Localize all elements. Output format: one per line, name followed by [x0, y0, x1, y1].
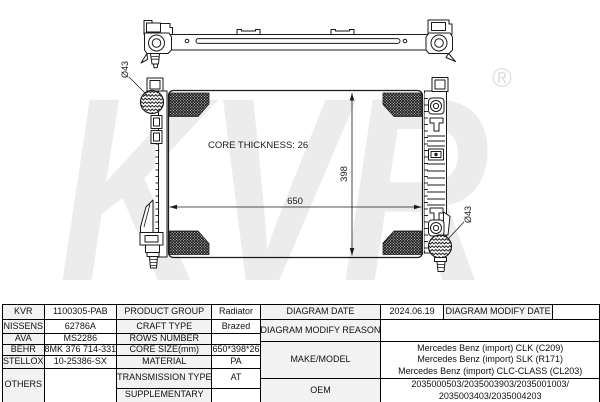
modify-reason-value [381, 320, 600, 342]
radiator-technical-drawing: KVR ® [0, 0, 600, 302]
crossbar-hole [403, 39, 407, 43]
oem-line: 2035003403/2035004203 [381, 391, 599, 402]
property-label: PRODUCT GROUP [117, 305, 212, 320]
brand-cell: KVR [3, 305, 45, 320]
brand-cell: BEHR [3, 344, 45, 355]
brand-cell: OTHERS [3, 368, 45, 402]
property-label: SUPPLEMENTARY [117, 388, 212, 402]
property-value: 650*398*26 [212, 344, 260, 355]
make-model-value: Mercedes Benz (import) CLK (C209) Merced… [381, 342, 600, 379]
part-code-cell: 1100305-PAB [44, 305, 117, 320]
modify-date-value [553, 305, 600, 320]
table-row: BEHR 8MK 376 714-331 CORE SIZE(mm) 650*3… [3, 344, 261, 355]
registered-trademark-icon: ® [492, 63, 512, 93]
spec-table: KVR 1100305-PAB PRODUCT GROUP Radiator N… [2, 304, 600, 402]
parts-cross-reference-table: KVR 1100305-PAB PRODUCT GROUP Radiator N… [2, 304, 261, 402]
property-label: CORE SIZE(mm) [117, 344, 212, 355]
diagram-date-value: 2024.06.19 [381, 305, 443, 320]
part-code-cell: MS2286 [44, 334, 117, 345]
table-row: STELLOX 10-25386-SX MATERIAL PA [3, 355, 261, 368]
left-stud-flange [147, 253, 159, 257]
modify-reason-label: DIAGRAM MODIFY REASON [260, 320, 381, 342]
oem-line: 2035000503/2035003903/2035001003/ [381, 379, 599, 391]
vehicle-info-table: DIAGRAM DATE 2024.06.19 DIAGRAM MODIFY D… [260, 304, 600, 402]
make-model-label: MAKE/MODEL [260, 342, 381, 379]
table-row: OEM 2035000503/2035003903/2035001003/ 20… [260, 379, 599, 402]
table-row: KVR 1100305-PAB PRODUCT GROUP Radiator [3, 305, 261, 320]
property-value [212, 388, 260, 402]
property-label: ROWS NUMBER [117, 334, 212, 345]
property-value: AT [212, 368, 260, 388]
table-row: NISSENS 62786A CRAFT TYPE Brazed [3, 320, 261, 334]
right-port-diameter-label: Ø43 [463, 206, 473, 223]
left-inlet-port [141, 91, 164, 114]
right-tank-serration [425, 93, 429, 251]
table-row: DIAGRAM DATE 2024.06.19 DIAGRAM MODIFY D… [260, 305, 599, 320]
table-row: OTHERS TRANSMISSION TYPE AT [3, 368, 261, 388]
part-code-cell: 8MK 376 714-331 [44, 344, 117, 355]
left-nipple [151, 54, 160, 65]
property-value: Brazed [212, 320, 260, 334]
mount-tab [237, 30, 260, 35]
table-row: MAKE/MODEL Mercedes Benz (import) CLK (C… [260, 342, 599, 379]
brand-cell: STELLOX [3, 355, 45, 368]
brand-cell: NISSENS [3, 320, 45, 334]
core-thickness-label: CORE THICKNESS: 26 [208, 140, 308, 151]
table-row: AVA MS2286 ROWS NUMBER [3, 334, 261, 345]
property-value: PA [212, 355, 260, 368]
make-model-line: Mercedes Benz (import) CLC-CLASS (CL203) [381, 366, 599, 378]
modify-date-label: DIAGRAM MODIFY DATE [443, 305, 553, 320]
make-model-line: Mercedes Benz (import) SLK (R171) [381, 354, 599, 366]
table-row: DIAGRAM MODIFY REASON [260, 320, 599, 342]
diagram-date-label: DIAGRAM DATE [260, 305, 381, 320]
property-value [212, 334, 260, 345]
right-stud [437, 262, 445, 272]
width-dimension-label: 650 [287, 196, 303, 207]
property-label: TRANSMISSION TYPE [117, 368, 212, 388]
part-code-cell: 62786A [44, 320, 117, 334]
property-value: Radiator [212, 305, 260, 320]
crossbar-hole [185, 39, 189, 43]
brand-cell: AVA [3, 334, 45, 345]
mount-tab [331, 30, 354, 35]
property-label: MATERIAL [117, 355, 212, 368]
property-label: CRAFT TYPE [117, 320, 212, 334]
right-stud-flange [435, 258, 447, 262]
part-code-cell [44, 368, 117, 402]
crossbar-slot [196, 39, 400, 44]
height-dimension-label: 398 [339, 166, 350, 182]
make-model-line: Mercedes Benz (import) CLK (C209) [381, 343, 599, 355]
kvr-radiator-spec-sheet: KVR ® [0, 0, 600, 402]
oem-label: OEM [260, 379, 381, 402]
part-code-cell: 10-25386-SX [44, 355, 117, 368]
left-port-diameter-label: Ø43 [120, 61, 130, 78]
oem-value: 2035000503/2035003903/2035001003/ 203500… [381, 379, 600, 402]
